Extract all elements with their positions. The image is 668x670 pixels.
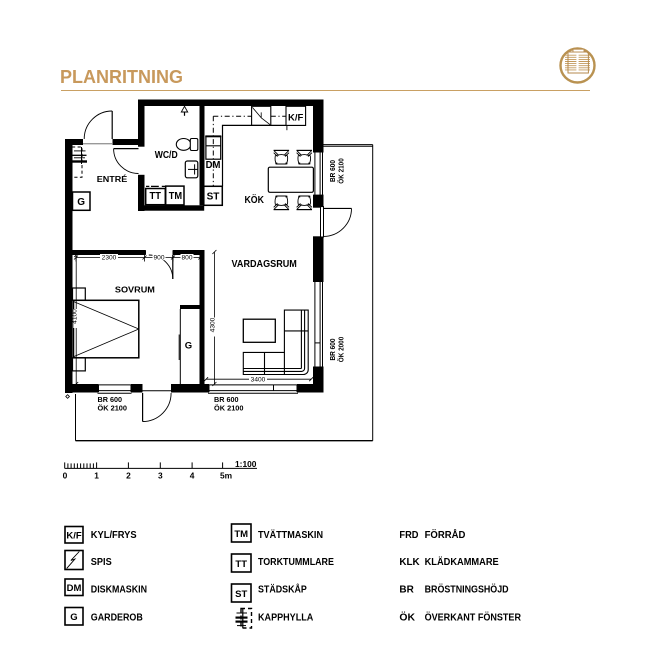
svg-text:FÖRRÅD: FÖRRÅD [425,528,466,541]
svg-text:1: 1 [94,470,99,480]
svg-text:DISKMASKIN: DISKMASKIN [91,585,147,596]
svg-text:ÖK: ÖK [399,610,415,623]
svg-text:G: G [185,341,192,352]
svg-text:KYL/FRYS: KYL/FRYS [91,530,137,541]
svg-text:SOVRUM: SOVRUM [115,285,155,294]
svg-text:G: G [77,197,85,208]
svg-text:4300: 4300 [209,317,216,332]
svg-text:ÖVERKANT FÖNSTER: ÖVERKANT FÖNSTER [425,610,522,623]
svg-text:BRÖSTNINGSHÖJD: BRÖSTNINGSHÖJD [425,583,509,596]
svg-text:K/F: K/F [288,112,304,123]
svg-text:3400: 3400 [251,377,266,384]
svg-text:TT: TT [150,191,161,202]
svg-text:ST: ST [235,589,247,600]
svg-text:GARDEROB: GARDEROB [91,612,143,623]
svg-text:TM: TM [169,191,182,202]
svg-text:STÄDSKÅP: STÄDSKÅP [258,583,307,596]
svg-text:4100: 4100 [71,309,78,324]
svg-text:KLK: KLK [399,557,420,568]
svg-text:ÖK 2100: ÖK 2100 [214,403,244,412]
svg-text:K/F: K/F [66,531,82,542]
svg-text:KÖK: KÖK [244,193,264,206]
svg-text:ÖK 2100: ÖK 2100 [98,403,128,412]
svg-text:TVÄTTMASKIN: TVÄTTMASKIN [258,528,323,541]
svg-text:800: 800 [181,255,192,262]
svg-text:G: G [70,612,77,623]
svg-text:DM: DM [67,583,82,594]
svg-text:WC/D: WC/D [155,150,178,161]
svg-text:1:100: 1:100 [235,459,257,469]
svg-text:2300: 2300 [102,255,117,262]
svg-text:SPIS: SPIS [91,557,112,568]
svg-text:ENTRÉ: ENTRÉ [97,175,128,184]
svg-text:BR: BR [399,585,414,596]
svg-text:ST: ST [207,191,220,202]
svg-text:ÖK 2000: ÖK 2000 [336,337,345,363]
svg-text:KLÄDKAMMARE: KLÄDKAMMARE [425,555,499,568]
svg-text:FRD: FRD [399,530,419,541]
svg-text:ÖK 2100: ÖK 2100 [336,158,345,184]
svg-text:5m: 5m [220,470,232,480]
svg-text:4: 4 [190,470,195,480]
svg-text:TT: TT [235,559,247,570]
svg-text:900: 900 [153,255,164,262]
svg-text:0: 0 [63,470,68,480]
svg-text:VARDAGSRUM: VARDAGSRUM [232,259,297,270]
svg-text:TORKTUMMLARE: TORKTUMMLARE [258,557,334,568]
svg-text:KAPPHYLLA: KAPPHYLLA [258,612,314,623]
svg-text:TM: TM [234,529,248,540]
svg-text:3: 3 [158,470,163,480]
svg-text:2: 2 [126,470,131,480]
